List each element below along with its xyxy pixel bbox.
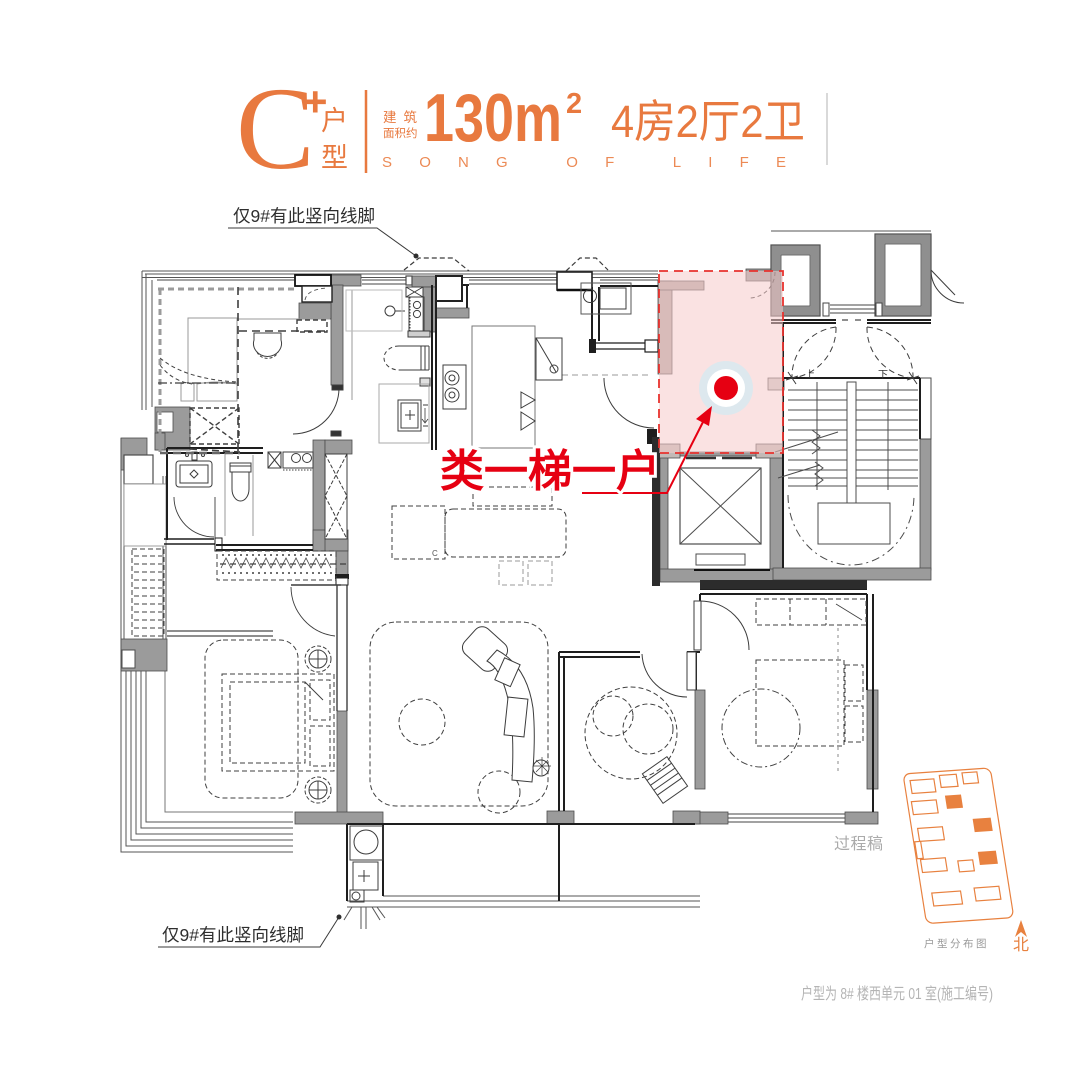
- svg-text:仅9#有此竖向线脚: 仅9#有此竖向线脚: [233, 206, 375, 226]
- svg-text:下: 下: [878, 370, 888, 381]
- svg-text:面积约: 面积约: [383, 126, 418, 140]
- svg-text:户型分布图: 户型分布图: [924, 937, 989, 950]
- svg-text:130m: 130m: [424, 80, 562, 156]
- svg-text:SONG OF LIFE: SONG OF LIFE: [382, 154, 786, 171]
- svg-text:仅9#有此竖向线脚: 仅9#有此竖向线脚: [162, 925, 304, 945]
- svg-text:上: 上: [805, 369, 815, 381]
- svg-text:类一梯一户: 类一梯一户: [440, 447, 660, 496]
- svg-text:户: 户: [321, 106, 348, 136]
- svg-text:C: C: [432, 549, 438, 558]
- svg-text:过程稿: 过程稿: [834, 835, 884, 853]
- svg-text:型: 型: [321, 143, 348, 173]
- svg-text:4房2厅2卫: 4房2厅2卫: [611, 96, 805, 147]
- svg-text:户型为 8# 楼西单元 01 室(施工编号): 户型为 8# 楼西单元 01 室(施工编号): [801, 985, 993, 1003]
- svg-text:建筑: 建筑: [383, 110, 424, 125]
- svg-text:北: 北: [1013, 936, 1029, 954]
- svg-text:2: 2: [566, 88, 582, 120]
